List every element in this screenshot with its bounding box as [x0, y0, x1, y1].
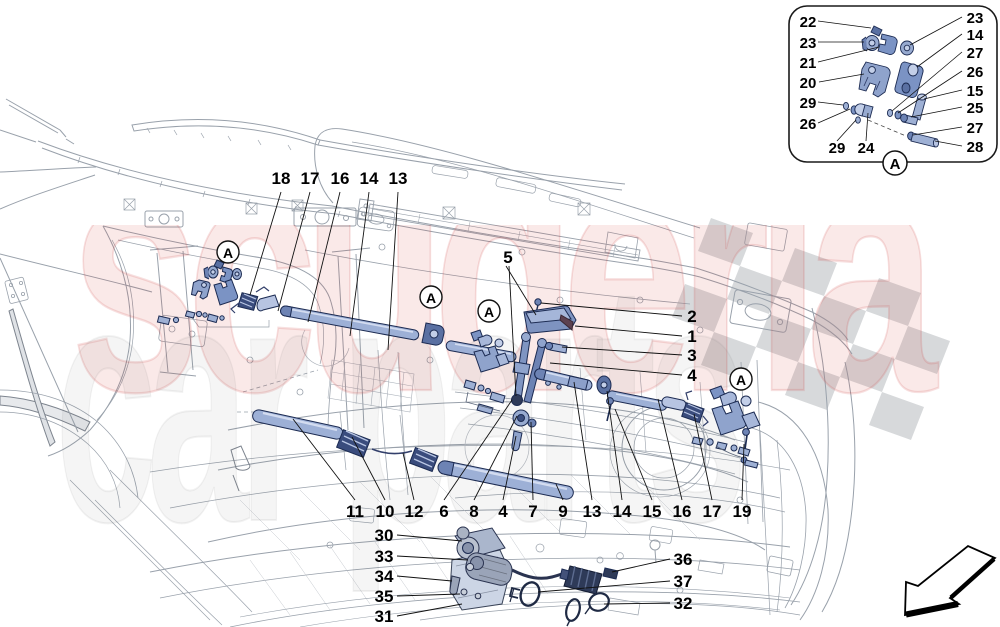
svg-text:24: 24	[858, 140, 875, 157]
svg-text:2: 2	[687, 307, 696, 326]
svg-text:26: 26	[967, 64, 984, 81]
svg-text:11: 11	[346, 502, 364, 521]
svg-text:16: 16	[673, 502, 692, 521]
svg-text:22: 22	[800, 14, 817, 31]
svg-text:5: 5	[503, 248, 512, 267]
svg-text:21: 21	[800, 55, 817, 72]
svg-text:1: 1	[687, 327, 696, 346]
svg-text:17: 17	[301, 169, 320, 188]
svg-text:30: 30	[375, 526, 394, 545]
svg-text:23: 23	[800, 35, 817, 52]
svg-text:18: 18	[272, 169, 291, 188]
svg-text:29: 29	[800, 95, 817, 112]
svg-text:20: 20	[800, 75, 817, 92]
svg-text:A: A	[426, 290, 436, 306]
svg-text:25: 25	[967, 100, 984, 117]
svg-text:26: 26	[800, 116, 817, 133]
svg-text:14: 14	[967, 27, 984, 44]
svg-text:8: 8	[469, 502, 478, 521]
svg-text:7: 7	[528, 502, 537, 521]
svg-text:A: A	[736, 372, 746, 388]
svg-text:27: 27	[967, 45, 984, 62]
svg-text:4: 4	[498, 502, 508, 521]
svg-text:36: 36	[674, 550, 693, 569]
svg-text:31: 31	[375, 607, 394, 626]
svg-text:27: 27	[967, 120, 984, 137]
svg-text:34: 34	[375, 567, 394, 586]
svg-text:14: 14	[613, 502, 632, 521]
svg-text:13: 13	[583, 502, 602, 521]
svg-text:13: 13	[389, 169, 408, 188]
svg-text:6: 6	[439, 502, 448, 521]
svg-text:10: 10	[376, 502, 395, 521]
svg-text:9: 9	[558, 502, 567, 521]
svg-text:16: 16	[331, 169, 350, 188]
svg-text:A: A	[484, 304, 494, 320]
svg-text:15: 15	[967, 83, 984, 100]
svg-text:A: A	[223, 245, 233, 261]
svg-text:37: 37	[674, 572, 693, 591]
svg-text:A: A	[890, 156, 901, 173]
svg-text:28: 28	[967, 139, 984, 156]
svg-text:32: 32	[674, 594, 693, 613]
svg-text:3: 3	[687, 346, 696, 365]
svg-text:29: 29	[829, 140, 846, 157]
svg-text:17: 17	[703, 502, 722, 521]
svg-text:33: 33	[375, 547, 394, 566]
svg-text:23: 23	[967, 10, 984, 27]
svg-text:35: 35	[375, 587, 394, 606]
svg-text:19: 19	[733, 502, 752, 521]
svg-text:12: 12	[405, 502, 424, 521]
svg-text:14: 14	[360, 169, 379, 188]
svg-text:15: 15	[643, 502, 662, 521]
svg-text:4: 4	[687, 366, 697, 385]
